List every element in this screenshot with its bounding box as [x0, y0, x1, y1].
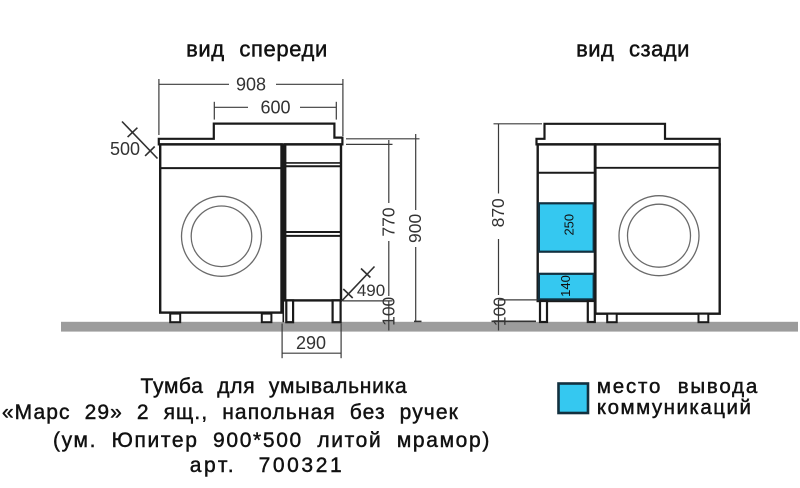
- svg-text:908: 908: [236, 74, 266, 94]
- svg-text:вид спереди: вид спереди: [186, 37, 328, 62]
- svg-text:290: 290: [296, 333, 326, 353]
- svg-text:250: 250: [562, 214, 577, 236]
- svg-text:100: 100: [378, 296, 398, 325]
- svg-text:900: 900: [405, 214, 425, 243]
- svg-text:490: 490: [357, 281, 385, 300]
- svg-text:500: 500: [110, 139, 140, 159]
- svg-text:арт. 700321: арт. 700321: [190, 454, 345, 477]
- svg-text:770: 770: [379, 207, 399, 236]
- svg-text:место вывода: место вывода: [597, 375, 759, 398]
- svg-text:870: 870: [488, 198, 508, 227]
- svg-text:вид сзади: вид сзади: [576, 37, 690, 62]
- svg-text:140: 140: [558, 275, 573, 297]
- svg-text:(ум. Юпитер 900*500 литой мрам: (ум. Юпитер 900*500 литой мрамор): [53, 429, 491, 452]
- svg-text:«Марс 29» 2 ящ., напольная без: «Марс 29» 2 ящ., напольная без ручек: [2, 401, 459, 424]
- svg-text:600: 600: [260, 97, 290, 117]
- svg-text:коммуникаций: коммуникаций: [597, 396, 753, 419]
- svg-text:Тумба для умывальника: Тумба для умывальника: [141, 375, 408, 398]
